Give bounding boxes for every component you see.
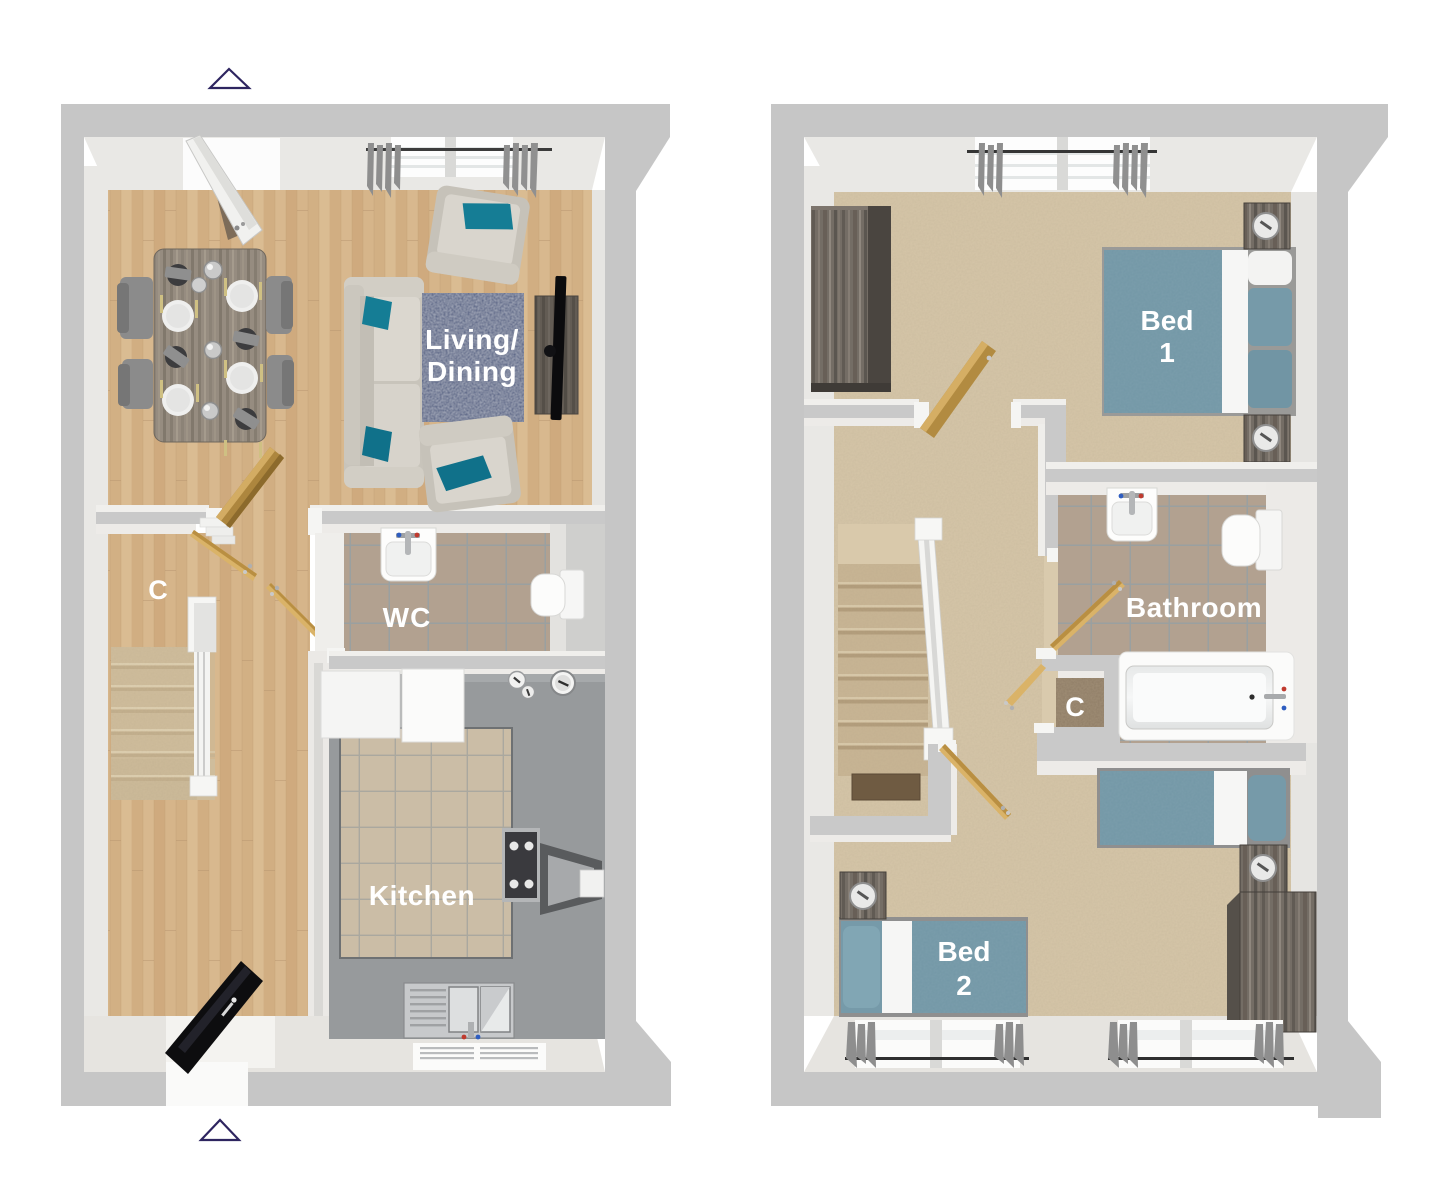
svg-text:2: 2 [956,970,972,1001]
svg-text:Bed: Bed [938,936,991,967]
svg-text:Kitchen: Kitchen [369,880,475,911]
svg-text:C: C [148,575,168,605]
svg-text:Bathroom: Bathroom [1126,592,1262,623]
svg-text:C: C [1065,692,1085,722]
svg-text:Living/: Living/ [425,324,519,355]
svg-text:Bed: Bed [1141,305,1194,336]
svg-text:Dining: Dining [427,356,517,387]
svg-text:WC: WC [383,602,432,633]
svg-text:1: 1 [1159,337,1175,368]
